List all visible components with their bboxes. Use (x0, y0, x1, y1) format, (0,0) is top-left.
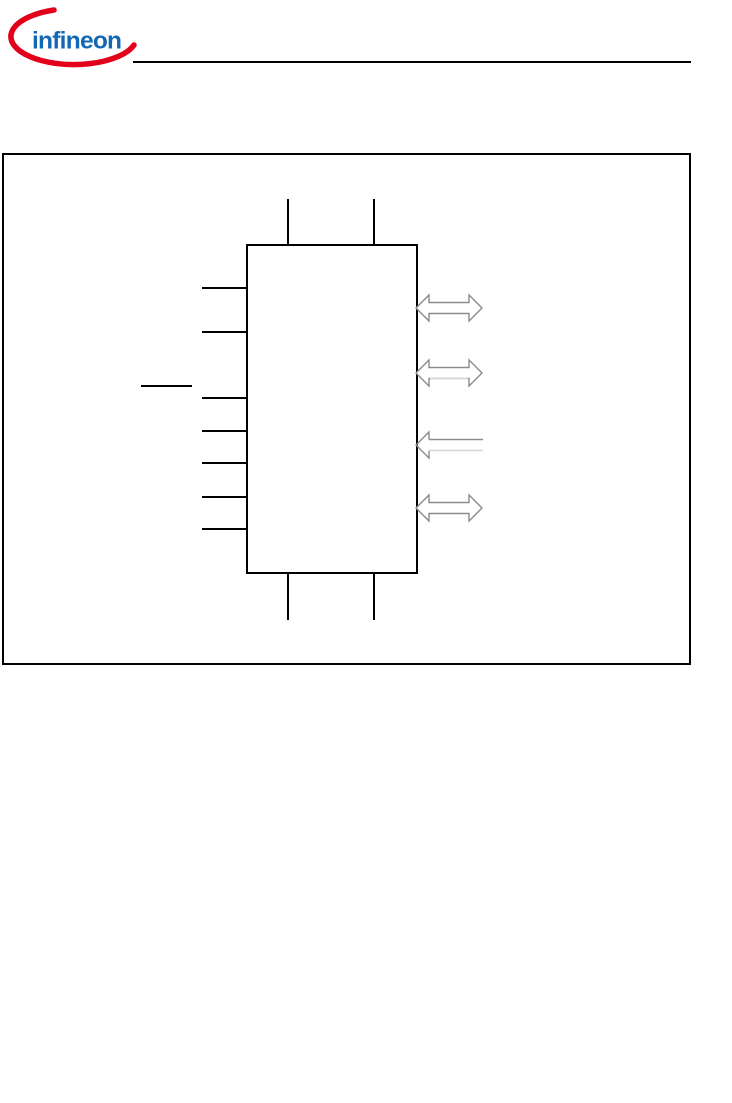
infineon-logo: infineon (6, 4, 142, 70)
bottom-pin (287, 574, 289, 620)
bidirectional-arrow-icon (415, 358, 483, 388)
left-pin (202, 287, 247, 289)
top-pin (287, 199, 289, 245)
bidirectional-arrow-icon (415, 293, 483, 323)
ic-block (246, 244, 418, 574)
document-page: infineon (0, 0, 732, 1103)
left-pin (202, 397, 247, 399)
left-arrow-icon (415, 430, 483, 460)
top-pin (373, 199, 375, 245)
left-pin (202, 331, 247, 333)
logo-wordmark: infineon (32, 28, 121, 55)
header-rule-line (133, 61, 691, 63)
reference-line (141, 385, 192, 387)
bidirectional-arrow-icon (415, 493, 483, 523)
bottom-pin (373, 574, 375, 620)
left-pin (202, 430, 247, 432)
left-pin (202, 496, 247, 498)
left-pin (202, 528, 247, 530)
left-pin (202, 462, 247, 464)
